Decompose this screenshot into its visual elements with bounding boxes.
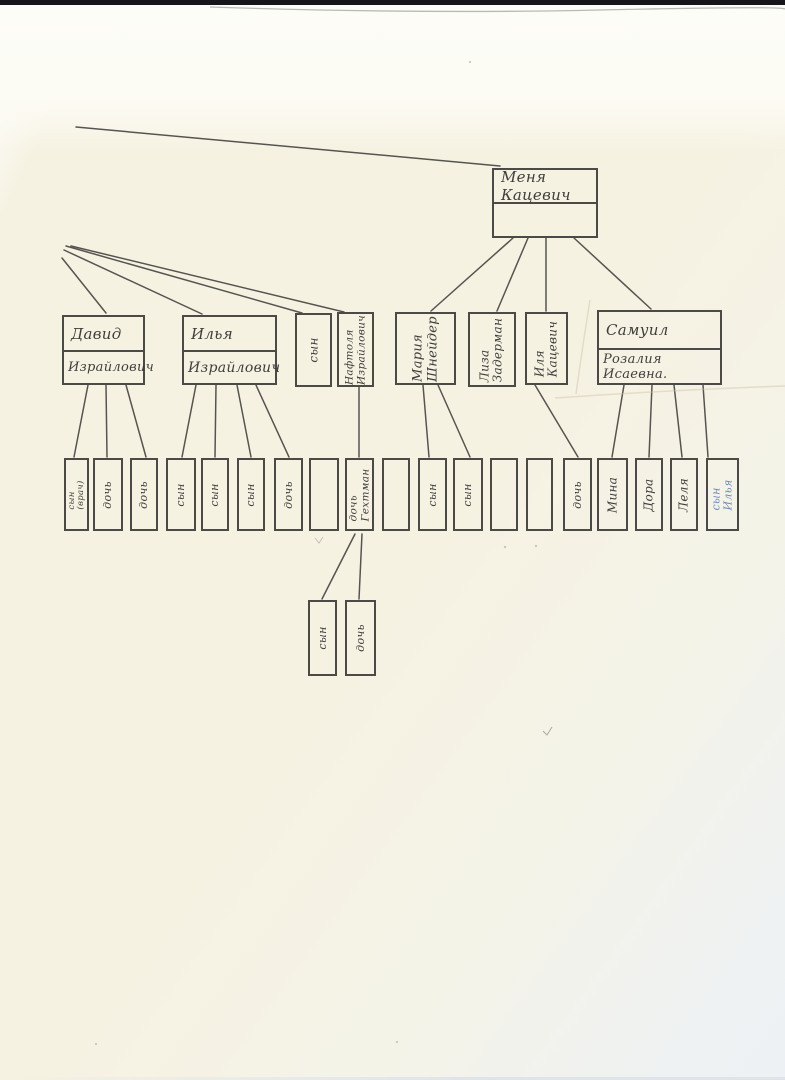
node-naftolya: Нафтоля Израйлович <box>337 312 374 387</box>
child-label: сын <box>175 483 187 506</box>
node-ilya-katsevich: Иля Кацевич <box>525 312 568 385</box>
child-label: Дора <box>642 478 655 511</box>
child-label: сын <box>209 483 221 506</box>
node-empty-cell <box>494 204 596 236</box>
node-child-2: дочь <box>93 458 123 531</box>
child-label: сын <box>245 483 257 506</box>
node-patronymic: Израйлович <box>184 352 275 383</box>
node-grandchild-daughter: дочь <box>345 600 376 676</box>
child-label: дочь <box>138 481 150 509</box>
node-child-7: дочь <box>274 458 303 531</box>
child-label: дочь <box>571 481 583 509</box>
child-label: Леля <box>677 478 690 512</box>
node-patronymic: Израйлович <box>64 352 143 383</box>
child-label: Мина <box>606 476 619 512</box>
child-label: дочь <box>282 481 294 509</box>
child-label: дочь Гехтман <box>348 468 372 521</box>
node-ilya: Илья Израйлович <box>182 315 277 385</box>
grandchild-label: сын <box>316 626 328 649</box>
node-name: Меня Кацевич <box>494 170 596 204</box>
node-child-15: дочь <box>563 458 592 531</box>
node-first-name: Илья <box>184 317 275 352</box>
node-label: сын <box>307 337 320 362</box>
node-child-3: дочь <box>130 458 158 531</box>
child-label: дочь <box>102 481 114 509</box>
node-child-8-empty <box>309 458 339 531</box>
node-label: Нафтоля Израйлович <box>344 314 368 384</box>
node-spouse-name: Розалия Исаевна. <box>599 350 720 383</box>
node-first-name: Самуил <box>599 312 720 350</box>
node-child-dora: Дора <box>635 458 663 531</box>
node-child-14-empty <box>526 458 553 531</box>
node-label: Лиза Задерман <box>479 317 506 381</box>
node-child-6: сын <box>237 458 265 531</box>
node-child-mina: Мина <box>597 458 628 531</box>
node-maria-shneider: Мария Шнейдер <box>395 312 456 385</box>
node-samuil: Самуил Розалия Исаевна. <box>597 310 722 385</box>
node-child-1: сын (врач) <box>64 458 89 531</box>
node-first-name: Давид <box>64 317 143 352</box>
node-david: Давид Израйлович <box>62 315 145 385</box>
child-label: сын (врач) <box>68 480 86 509</box>
node-label: Иля Кацевич <box>533 320 560 376</box>
node-son: сын <box>295 313 332 387</box>
grandchild-label: дочь <box>354 624 366 652</box>
node-child-9-gekhtman: дочь Гехтман <box>345 458 374 531</box>
node-child-4: сын <box>166 458 196 531</box>
connector-lines <box>0 0 785 1080</box>
node-child-lelya: Леля <box>670 458 698 531</box>
node-child-5: сын <box>201 458 229 531</box>
node-child-10-empty <box>382 458 410 531</box>
node-child-19-blue: сын Илья <box>706 458 739 531</box>
node-menya-katsevich: Меня Кацевич <box>492 168 598 238</box>
child-label: сын <box>462 483 474 506</box>
node-child-12: сын <box>453 458 483 531</box>
node-liza-zaderman: Лиза Задерман <box>468 312 516 387</box>
node-label: Мария Шнейдер <box>411 316 440 382</box>
node-child-11: сын <box>418 458 447 531</box>
scanned-family-tree-page: Меня Кацевич Давид Израйлович Илья Израй… <box>0 0 785 1080</box>
node-child-13-empty <box>490 458 518 531</box>
child-label-blue-ink: сын Илья <box>710 479 735 510</box>
node-grandchild-son: сын <box>308 600 337 676</box>
child-label: сын <box>426 483 438 506</box>
